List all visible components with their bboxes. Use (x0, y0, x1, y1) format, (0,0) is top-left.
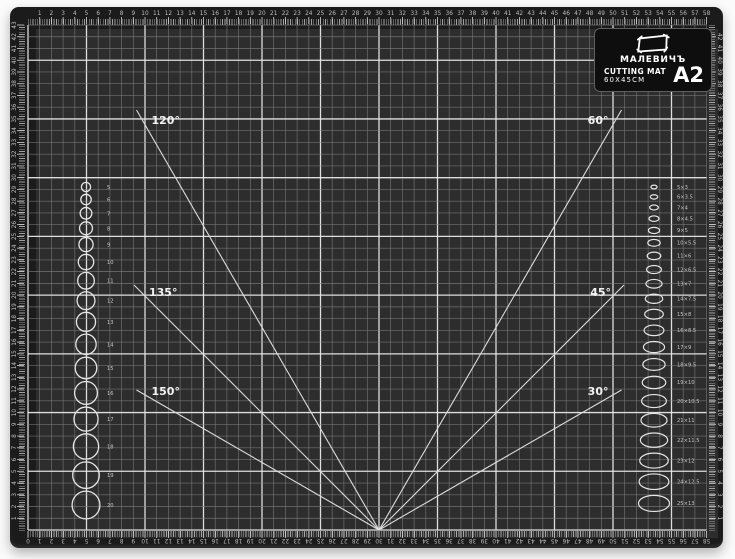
ruler-number-top: 8 (120, 11, 124, 17)
ruler-number-bottom: 18 (235, 537, 243, 543)
ruler-number-top: 29 (364, 11, 372, 17)
ruler-number-bottom: 33 (410, 537, 418, 543)
ruler-number-left: 42 (12, 33, 18, 41)
angle-label: 135° (149, 286, 177, 299)
ruler-number-top: 6 (96, 11, 100, 17)
ruler-number-bottom: 11 (153, 537, 161, 543)
ellipse-size-label: 13×7 (677, 282, 691, 288)
ruler-number-left: 18 (12, 315, 18, 323)
template-ellipse (643, 342, 664, 353)
ruler-number-top: 38 (469, 11, 477, 17)
ruler-number-right: 37 (716, 92, 722, 100)
ruler-number-top: 53 (644, 11, 652, 17)
ellipse-size-label: 11×6 (677, 254, 691, 260)
ruler-number-top: 4 (73, 11, 77, 17)
ruler-number-top: 56 (680, 11, 688, 17)
ruler-number-left: 8 (12, 434, 18, 438)
ruler-number-bottom: 2 (49, 537, 53, 543)
circle-size-label: 14 (107, 342, 114, 348)
ruler-number-left: 2 (12, 504, 18, 508)
ruler-number-top: 3 (61, 11, 65, 17)
ellipse-size-label: 10×5.5 (677, 241, 696, 247)
ruler-number-bottom: 12 (164, 537, 172, 543)
ruler-number-right: 33 (716, 139, 722, 147)
ruler-number-bottom: 38 (469, 537, 477, 543)
ruler-number-top: 46 (563, 11, 571, 17)
ellipse-size-label: 22×11.5 (677, 438, 700, 444)
circle-size-label: 7 (107, 211, 110, 217)
ruler-number-top: 39 (481, 11, 489, 17)
ruler-number-left: 37 (12, 91, 18, 99)
ruler-number-bottom: 44 (539, 537, 547, 543)
ellipse-size-label: 21×11 (677, 418, 695, 424)
ruler-number-right: 21 (716, 280, 722, 288)
ruler-number-top: 54 (656, 11, 664, 17)
ruler-number-top: 44 (539, 11, 547, 17)
ellipse-size-label: 17×9 (677, 345, 691, 351)
ellipse-size-label: 8×4.5 (677, 216, 693, 222)
ruler-number-top: 45 (551, 11, 559, 17)
ruler-number-top: 17 (223, 11, 231, 17)
ruler-number-bottom: 6 (96, 537, 100, 543)
ruler-number-bottom: 0 (26, 537, 30, 543)
angle-label: 120° (152, 114, 180, 127)
ruler-number-left: 9 (12, 422, 18, 426)
ellipse-size-label: 18×9.5 (677, 362, 696, 368)
ruler-number-bottom: 35 (434, 537, 442, 543)
ellipse-size-label: 14×7.5 (677, 296, 696, 302)
ruler-number-bottom: 16 (211, 537, 219, 543)
template-ellipse (647, 266, 662, 274)
ruler-number-top: 55 (668, 11, 676, 17)
ruler-number-top: 26 (329, 11, 337, 17)
format-label: A2 (673, 67, 704, 85)
ruler-number-top: 35 (434, 11, 442, 17)
ellipse-size-label: 25×13 (677, 501, 695, 507)
ruler-number-top: 57 (691, 11, 699, 17)
circle-size-label: 19 (107, 473, 114, 479)
ruler-number-left: 1 (12, 516, 18, 520)
ruler-number-right: 14 (716, 362, 722, 370)
ruler-number-left: 30 (12, 174, 18, 182)
ruler-number-top: 51 (621, 11, 629, 17)
ruler-number-bottom: 50 (609, 537, 617, 543)
ruler-number-bottom: 29 (363, 537, 371, 543)
template-ellipse (643, 359, 665, 371)
circle-size-label: 20 (107, 503, 114, 509)
ruler-number-bottom: 30 (375, 537, 383, 543)
ruler-number-left: 32 (12, 150, 18, 158)
ruler-number-right: 22 (716, 268, 722, 276)
ruler-number-left: 23 (12, 256, 18, 264)
ruler-number-right: 6 (716, 458, 722, 462)
angle-guide-line (134, 285, 379, 530)
ruler-number-right: 12 (716, 385, 722, 393)
ruler-number-left: 6 (12, 457, 18, 461)
product-name: CUTTING MAT (604, 67, 666, 76)
ruler-number-top: 24 (305, 11, 313, 17)
template-ellipse (639, 474, 669, 490)
ruler-number-bottom: 5 (84, 537, 88, 543)
ellipse-size-label: 23×12 (677, 458, 695, 464)
ruler-number-right: 2 (716, 505, 722, 509)
ruler-number-bottom: 23 (293, 537, 301, 543)
ruler-number-top: 31 (387, 11, 395, 17)
ruler-number-bottom: 52 (632, 537, 640, 543)
ruler-number-bottom: 47 (574, 537, 582, 543)
ruler-number-top: 25 (317, 11, 325, 17)
ruler-number-right: 1 (716, 516, 722, 520)
circle-size-label: 11 (107, 279, 114, 285)
ruler-number-left: 22 (12, 268, 18, 276)
template-ellipse (640, 453, 669, 468)
template-ellipse (647, 252, 661, 259)
template-ellipse (648, 239, 660, 246)
brand-plate: МАЛЕВИЧЪ CUTTING MAT 60X45CM A2 (594, 28, 712, 92)
ruler-number-top: 42 (516, 11, 524, 17)
ruler-number-top: 19 (247, 11, 255, 17)
ruler-number-right: 30 (716, 174, 722, 182)
ruler-number-bottom: 55 (668, 537, 676, 543)
ruler-number-left: 12 (12, 385, 18, 393)
ruler-number-top: 14 (188, 11, 196, 17)
ruler-number-right: 26 (716, 221, 722, 229)
ruler-number-right: 23 (716, 256, 722, 264)
ruler-number-top: 5 (85, 11, 89, 17)
ruler-number-bottom: 32 (398, 537, 406, 543)
ruler-number-bottom: 46 (562, 537, 570, 543)
ruler-number-left: 34 (12, 127, 18, 135)
template-ellipse (649, 216, 659, 222)
template-ellipse (650, 195, 657, 199)
template-ellipse (648, 227, 659, 233)
ellipse-size-label: 6×3.5 (677, 195, 693, 201)
ruler-number-right: 39 (716, 68, 722, 76)
ruler-number-bottom: 27 (340, 537, 348, 543)
ruler-number-bottom: 42 (515, 537, 523, 543)
circle-size-label: 9 (107, 243, 110, 249)
ruler-number-top: 13 (176, 11, 184, 17)
ruler-number-bottom: 49 (597, 537, 605, 543)
ruler-number-right: 38 (716, 80, 722, 88)
ruler-number-top: 22 (282, 11, 290, 17)
circle-size-label: 5 (107, 185, 110, 191)
ellipse-size-label: 12×6.5 (677, 267, 696, 273)
ruler-number-right: 19 (716, 303, 722, 311)
angle-label: 30° (588, 385, 609, 398)
ruler-number-top: 15 (200, 11, 208, 17)
ruler-number-bottom: 39 (480, 537, 488, 543)
ruler-number-top: 28 (352, 11, 360, 17)
ruler-number-bottom: 31 (387, 537, 395, 543)
ruler-number-bottom: 19 (246, 537, 254, 543)
ruler-number-left: 7 (12, 446, 18, 450)
circle-size-label: 17 (107, 417, 114, 423)
ruler-number-top: 47 (574, 11, 582, 17)
ellipse-size-label: 15×8 (677, 312, 691, 318)
ruler-number-top: 1 (38, 11, 42, 17)
ruler-number-top: 58 (703, 11, 711, 17)
template-ellipse (639, 495, 670, 511)
ruler-number-right: 9 (716, 422, 722, 426)
ruler-number-right: 8 (716, 434, 722, 438)
ruler-number-bottom: 15 (200, 537, 208, 543)
ruler-number-right: 16 (716, 338, 722, 346)
ruler-number-bottom: 20 (258, 537, 266, 543)
ruler-number-left: 4 (12, 481, 18, 485)
ruler-number-bottom: 21 (270, 537, 278, 543)
ruler-number-top: 9 (131, 11, 135, 17)
ruler-number-right: 5 (716, 469, 722, 473)
ruler-number-bottom: 1 (38, 537, 42, 543)
ruler-number-top: 27 (340, 11, 348, 17)
angle-guide-line (379, 390, 621, 530)
ruler-number-right: 3 (716, 493, 722, 497)
angle-label: 150° (152, 385, 180, 398)
ruler-number-left: 21 (12, 279, 18, 287)
ruler-number-bottom: 13 (176, 537, 184, 543)
ellipse-size-label: 7×4 (677, 205, 689, 211)
ruler-number-left: 39 (12, 68, 18, 76)
ruler-number-top: 2 (50, 11, 54, 17)
circle-size-label: 13 (107, 320, 114, 326)
ruler-number-top: 32 (399, 11, 407, 17)
product-photo: 1234567891011121314151617181920212223242… (0, 0, 735, 559)
ellipse-size-label: 5×3 (677, 185, 688, 191)
ruler-number-left: 15 (12, 350, 18, 358)
template-ellipse (641, 413, 667, 427)
ruler-number-left: 19 (12, 303, 18, 311)
ruler-number-bottom: 45 (551, 537, 559, 543)
ruler-number-top: 7 (108, 11, 112, 17)
ruler-number-bottom: 7 (108, 537, 112, 543)
mat-dimensions: 60X45CM (604, 76, 666, 85)
ruler-number-bottom: 34 (422, 537, 430, 543)
ruler-number-bottom: 53 (644, 537, 652, 543)
ruler-number-left: 31 (12, 162, 18, 170)
ruler-number-top: 23 (293, 11, 301, 17)
ruler-number-top: 40 (492, 11, 500, 17)
ruler-number-top: 36 (446, 11, 454, 17)
circle-size-label: 16 (107, 391, 114, 397)
template-ellipse (651, 185, 657, 189)
ruler-number-right: 13 (716, 374, 722, 382)
ruler-number-left: 14 (12, 362, 18, 370)
ruler-number-bottom: 54 (656, 537, 664, 543)
ruler-number-bottom: 43 (527, 537, 535, 543)
ruler-number-bottom: 40 (492, 537, 500, 543)
ruler-number-right: 4 (716, 481, 722, 485)
ruler-number-top: 33 (410, 11, 418, 17)
ruler-number-top: 34 (422, 11, 430, 17)
ruler-number-left: 28 (12, 197, 18, 205)
angle-label: 45° (590, 286, 611, 299)
ruler-number-left: 5 (12, 469, 18, 473)
ruler-number-right: 40 (716, 57, 722, 65)
circle-size-label: 18 (107, 444, 114, 450)
ruler-number-left: 16 (12, 338, 18, 346)
ruler-number-top: 10 (141, 11, 149, 17)
plate-text-block: CUTTING MAT 60X45CM (604, 67, 666, 85)
ruler-number-top: 43 (527, 11, 535, 17)
circle-size-label: 10 (107, 260, 114, 266)
circle-size-label: 15 (107, 366, 114, 372)
template-ellipse (642, 376, 666, 388)
ruler-number-right: 32 (716, 150, 722, 158)
ruler-number-bottom: 10 (141, 537, 149, 543)
angle-guide-line (137, 110, 379, 530)
ruler-number-bottom: 58 (703, 537, 711, 543)
angle-guide-line (137, 390, 379, 530)
ruler-number-left: 29 (12, 185, 18, 193)
ruler-number-top: 41 (504, 11, 512, 17)
ruler-number-right: 29 (716, 186, 722, 194)
angle-label: 60° (588, 114, 609, 127)
ruler-number-right: 28 (716, 197, 722, 205)
angle-guide-line (379, 110, 621, 530)
ruler-number-left: 43 (12, 21, 18, 29)
ellipse-size-label: 9×5 (677, 228, 688, 234)
template-ellipse (640, 433, 667, 447)
ruler-number-bottom: 14 (188, 537, 196, 543)
ruler-number-left: 40 (12, 56, 18, 64)
ruler-number-left: 17 (12, 326, 18, 334)
ruler-number-top: 52 (633, 11, 641, 17)
ruler-number-bottom: 26 (328, 537, 336, 543)
ellipse-size-label: 19×10 (677, 380, 695, 386)
ruler-number-bottom: 37 (457, 537, 465, 543)
rectangle-logo-icon (636, 33, 671, 53)
ruler-number-bottom: 51 (621, 537, 629, 543)
ruler-number-right: 18 (716, 315, 722, 323)
ruler-number-left: 25 (12, 232, 18, 240)
ruler-number-top: 11 (153, 11, 161, 17)
ruler-number-top: 30 (375, 11, 383, 17)
ruler-number-left: 13 (12, 373, 18, 381)
ruler-number-top: 16 (212, 11, 220, 17)
ruler-number-bottom: 22 (281, 537, 289, 543)
ruler-number-top: 37 (457, 11, 465, 17)
ruler-number-left: 24 (12, 244, 18, 252)
ruler-number-right: 42 (716, 33, 722, 41)
ruler-number-right: 35 (716, 115, 722, 123)
ruler-number-right: 25 (716, 233, 722, 241)
ruler-number-right: 36 (716, 104, 722, 112)
ruler-number-bottom: 3 (61, 537, 65, 543)
ruler-number-left: 35 (12, 115, 18, 123)
ruler-number-left: 20 (12, 291, 18, 299)
angle-guide-line (379, 285, 624, 530)
ruler-number-bottom: 57 (691, 537, 699, 543)
ruler-number-bottom: 24 (305, 537, 313, 543)
ruler-number-left: 27 (12, 209, 18, 217)
ruler-number-bottom: 25 (317, 537, 325, 543)
circle-size-label: 12 (107, 299, 114, 305)
ruler-number-right: 15 (716, 350, 722, 358)
ruler-number-left: 26 (12, 221, 18, 229)
ruler-number-top: 18 (235, 11, 243, 17)
ruler-number-bottom: 9 (131, 537, 135, 543)
ruler-number-bottom: 41 (504, 537, 512, 543)
ruler-number-right: 7 (716, 446, 722, 450)
ruler-number-top: 21 (270, 11, 278, 17)
ruler-number-top: 20 (258, 11, 266, 17)
ruler-number-left: 41 (12, 45, 18, 53)
circle-size-label: 8 (107, 226, 110, 232)
ruler-number-right: 24 (716, 244, 722, 252)
ruler-number-right: 11 (716, 397, 722, 405)
ruler-number-bottom: 4 (73, 537, 77, 543)
ruler-number-top: 12 (165, 11, 173, 17)
ruler-number-right: 27 (716, 209, 722, 217)
ruler-number-right: 20 (716, 291, 722, 299)
ellipse-size-label: 24×12.5 (677, 479, 700, 485)
ruler-number-left: 11 (12, 397, 18, 405)
ellipse-size-label: 20×10.5 (677, 399, 700, 405)
ruler-number-bottom: 17 (223, 537, 231, 543)
ellipse-size-label: 16×8.5 (677, 328, 696, 334)
ruler-number-right: 34 (716, 127, 722, 135)
ruler-number-right: 31 (716, 162, 722, 170)
ruler-number-left: 33 (12, 138, 18, 146)
template-ellipse (650, 205, 659, 210)
ruler-number-left: 10 (12, 409, 18, 417)
ruler-number-right: 17 (716, 327, 722, 335)
ruler-number-bottom: 8 (119, 537, 123, 543)
ruler-number-left: 36 (12, 103, 18, 111)
ruler-number-top: 50 (609, 11, 617, 17)
template-ellipse (645, 309, 664, 319)
ruler-number-top: 48 (586, 11, 594, 17)
ruler-number-right: 10 (716, 409, 722, 417)
ruler-number-bottom: 36 (445, 537, 453, 543)
ruler-number-right: 41 (716, 45, 722, 53)
ruler-number-bottom: 48 (586, 537, 594, 543)
circle-size-label: 6 (107, 198, 110, 204)
ruler-number-top: 49 (598, 11, 606, 17)
ruler-number-bottom: 28 (352, 537, 360, 543)
ruler-number-left: 38 (12, 80, 18, 88)
ruler-number-left: 3 (12, 493, 18, 497)
ruler-number-bottom: 56 (679, 537, 687, 543)
